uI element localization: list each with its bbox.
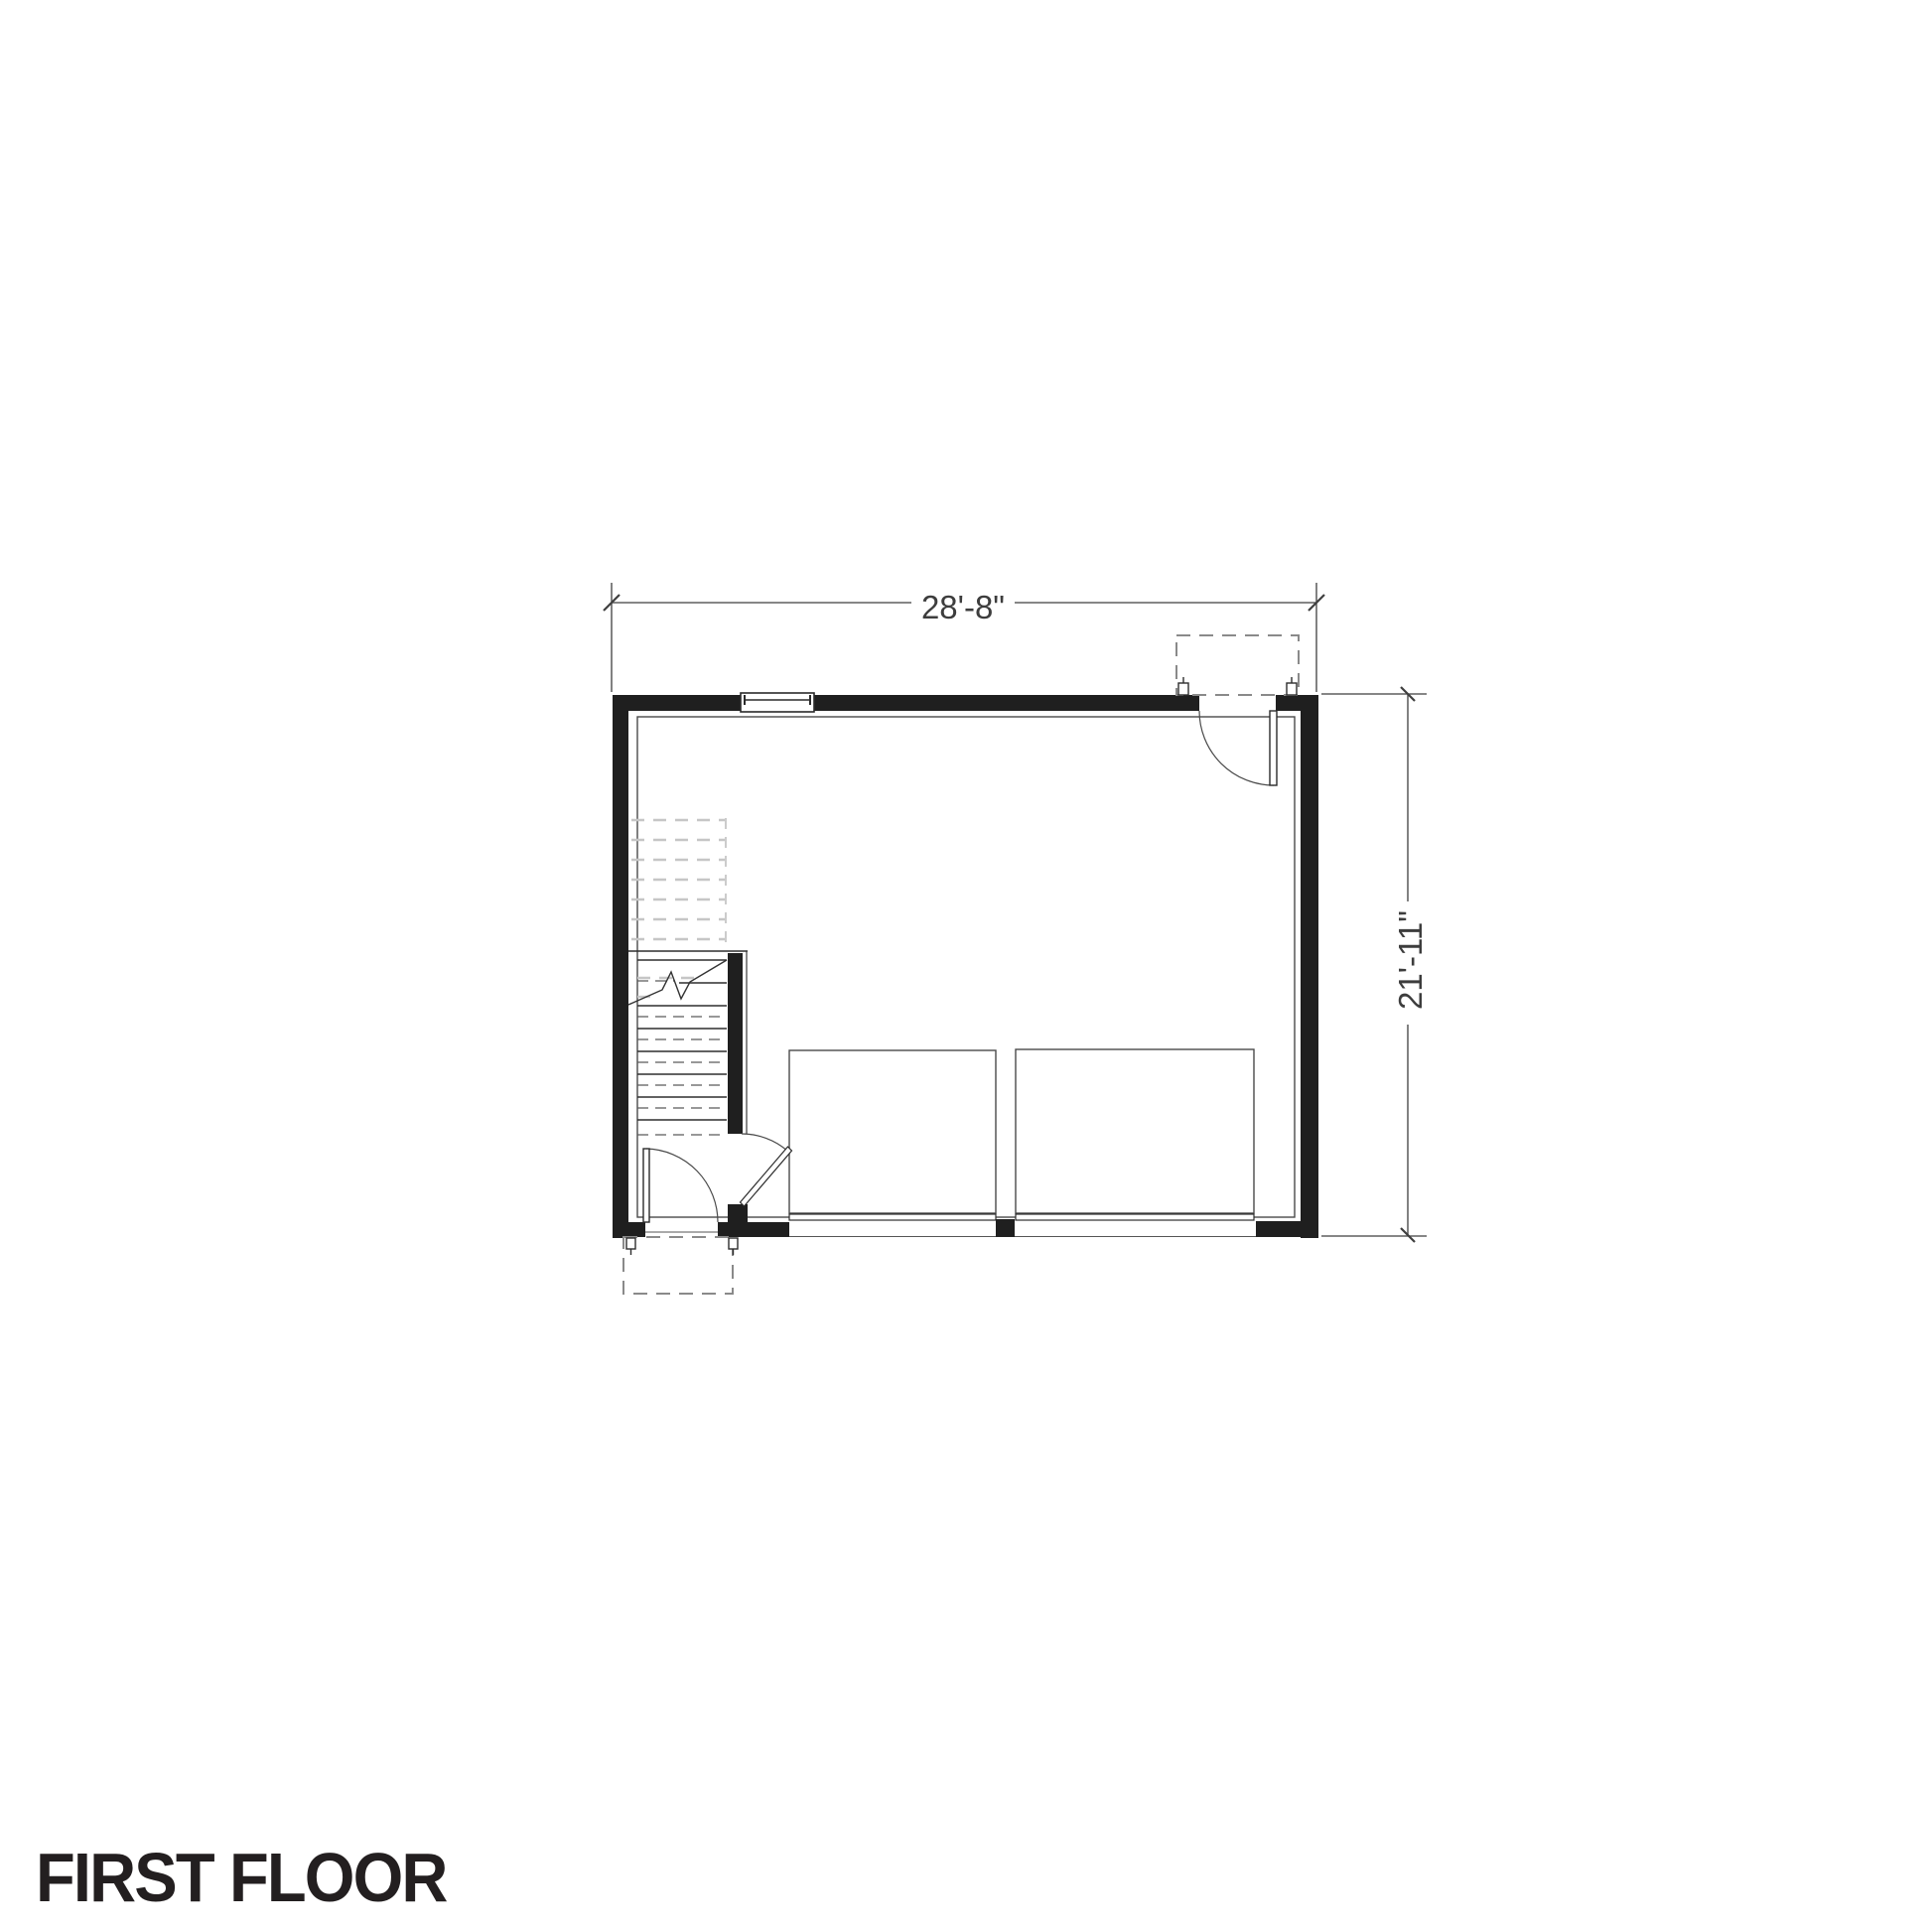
entry-door-top-leaf (1270, 711, 1277, 785)
stair-side-wall (728, 953, 743, 1134)
entry-door-top (1199, 711, 1277, 785)
stoop-bottom-posts (626, 1238, 738, 1255)
garage-door-left (789, 1214, 996, 1220)
stairs-upper-flight-dashed (631, 818, 726, 997)
stoop-top-posts (1178, 677, 1297, 695)
top-wall-left-segment (613, 695, 742, 711)
window (741, 693, 814, 712)
garage-center-post (996, 1219, 1015, 1237)
right-wall (1301, 695, 1318, 1238)
garage-door-track-left (789, 1050, 996, 1213)
garage-door-track-right (1016, 1049, 1254, 1213)
entry-door-bottom (643, 1149, 718, 1222)
garage-door-right (1016, 1214, 1254, 1220)
entry-door-bottom-swing-arc (646, 1149, 718, 1222)
stoop-top (1176, 635, 1299, 695)
left-wall (613, 695, 628, 1238)
stair-garage-door-swing-arc (742, 1134, 787, 1151)
bottom-wall-right-corner (1256, 1221, 1318, 1237)
stair-wall-stub (728, 1204, 748, 1223)
stoop-bottom (623, 1237, 738, 1294)
floor-plan-drawing (0, 0, 1932, 1932)
entry-door-bottom-leaf (643, 1149, 649, 1222)
stairs (628, 818, 748, 1135)
stair-garage-door-leaf (741, 1147, 792, 1206)
page: 28'-8" 21'-11" FIRST FLOOR (0, 0, 1932, 1932)
dimension-height-label: 21'-11" (1392, 881, 1430, 1039)
bottom-wall-left-corner (613, 1222, 645, 1237)
top-wall-middle-segment (813, 695, 1199, 711)
stair-garage-door (741, 1134, 792, 1206)
entry-door-top-swing-arc (1199, 711, 1274, 785)
stair-tread-dashed-lines (637, 981, 727, 1135)
plan-title: FIRST FLOOR (36, 1838, 447, 1917)
dimension-width-label: 28'-8" (884, 589, 1042, 626)
bottom-wall-stair-segment (718, 1222, 789, 1237)
